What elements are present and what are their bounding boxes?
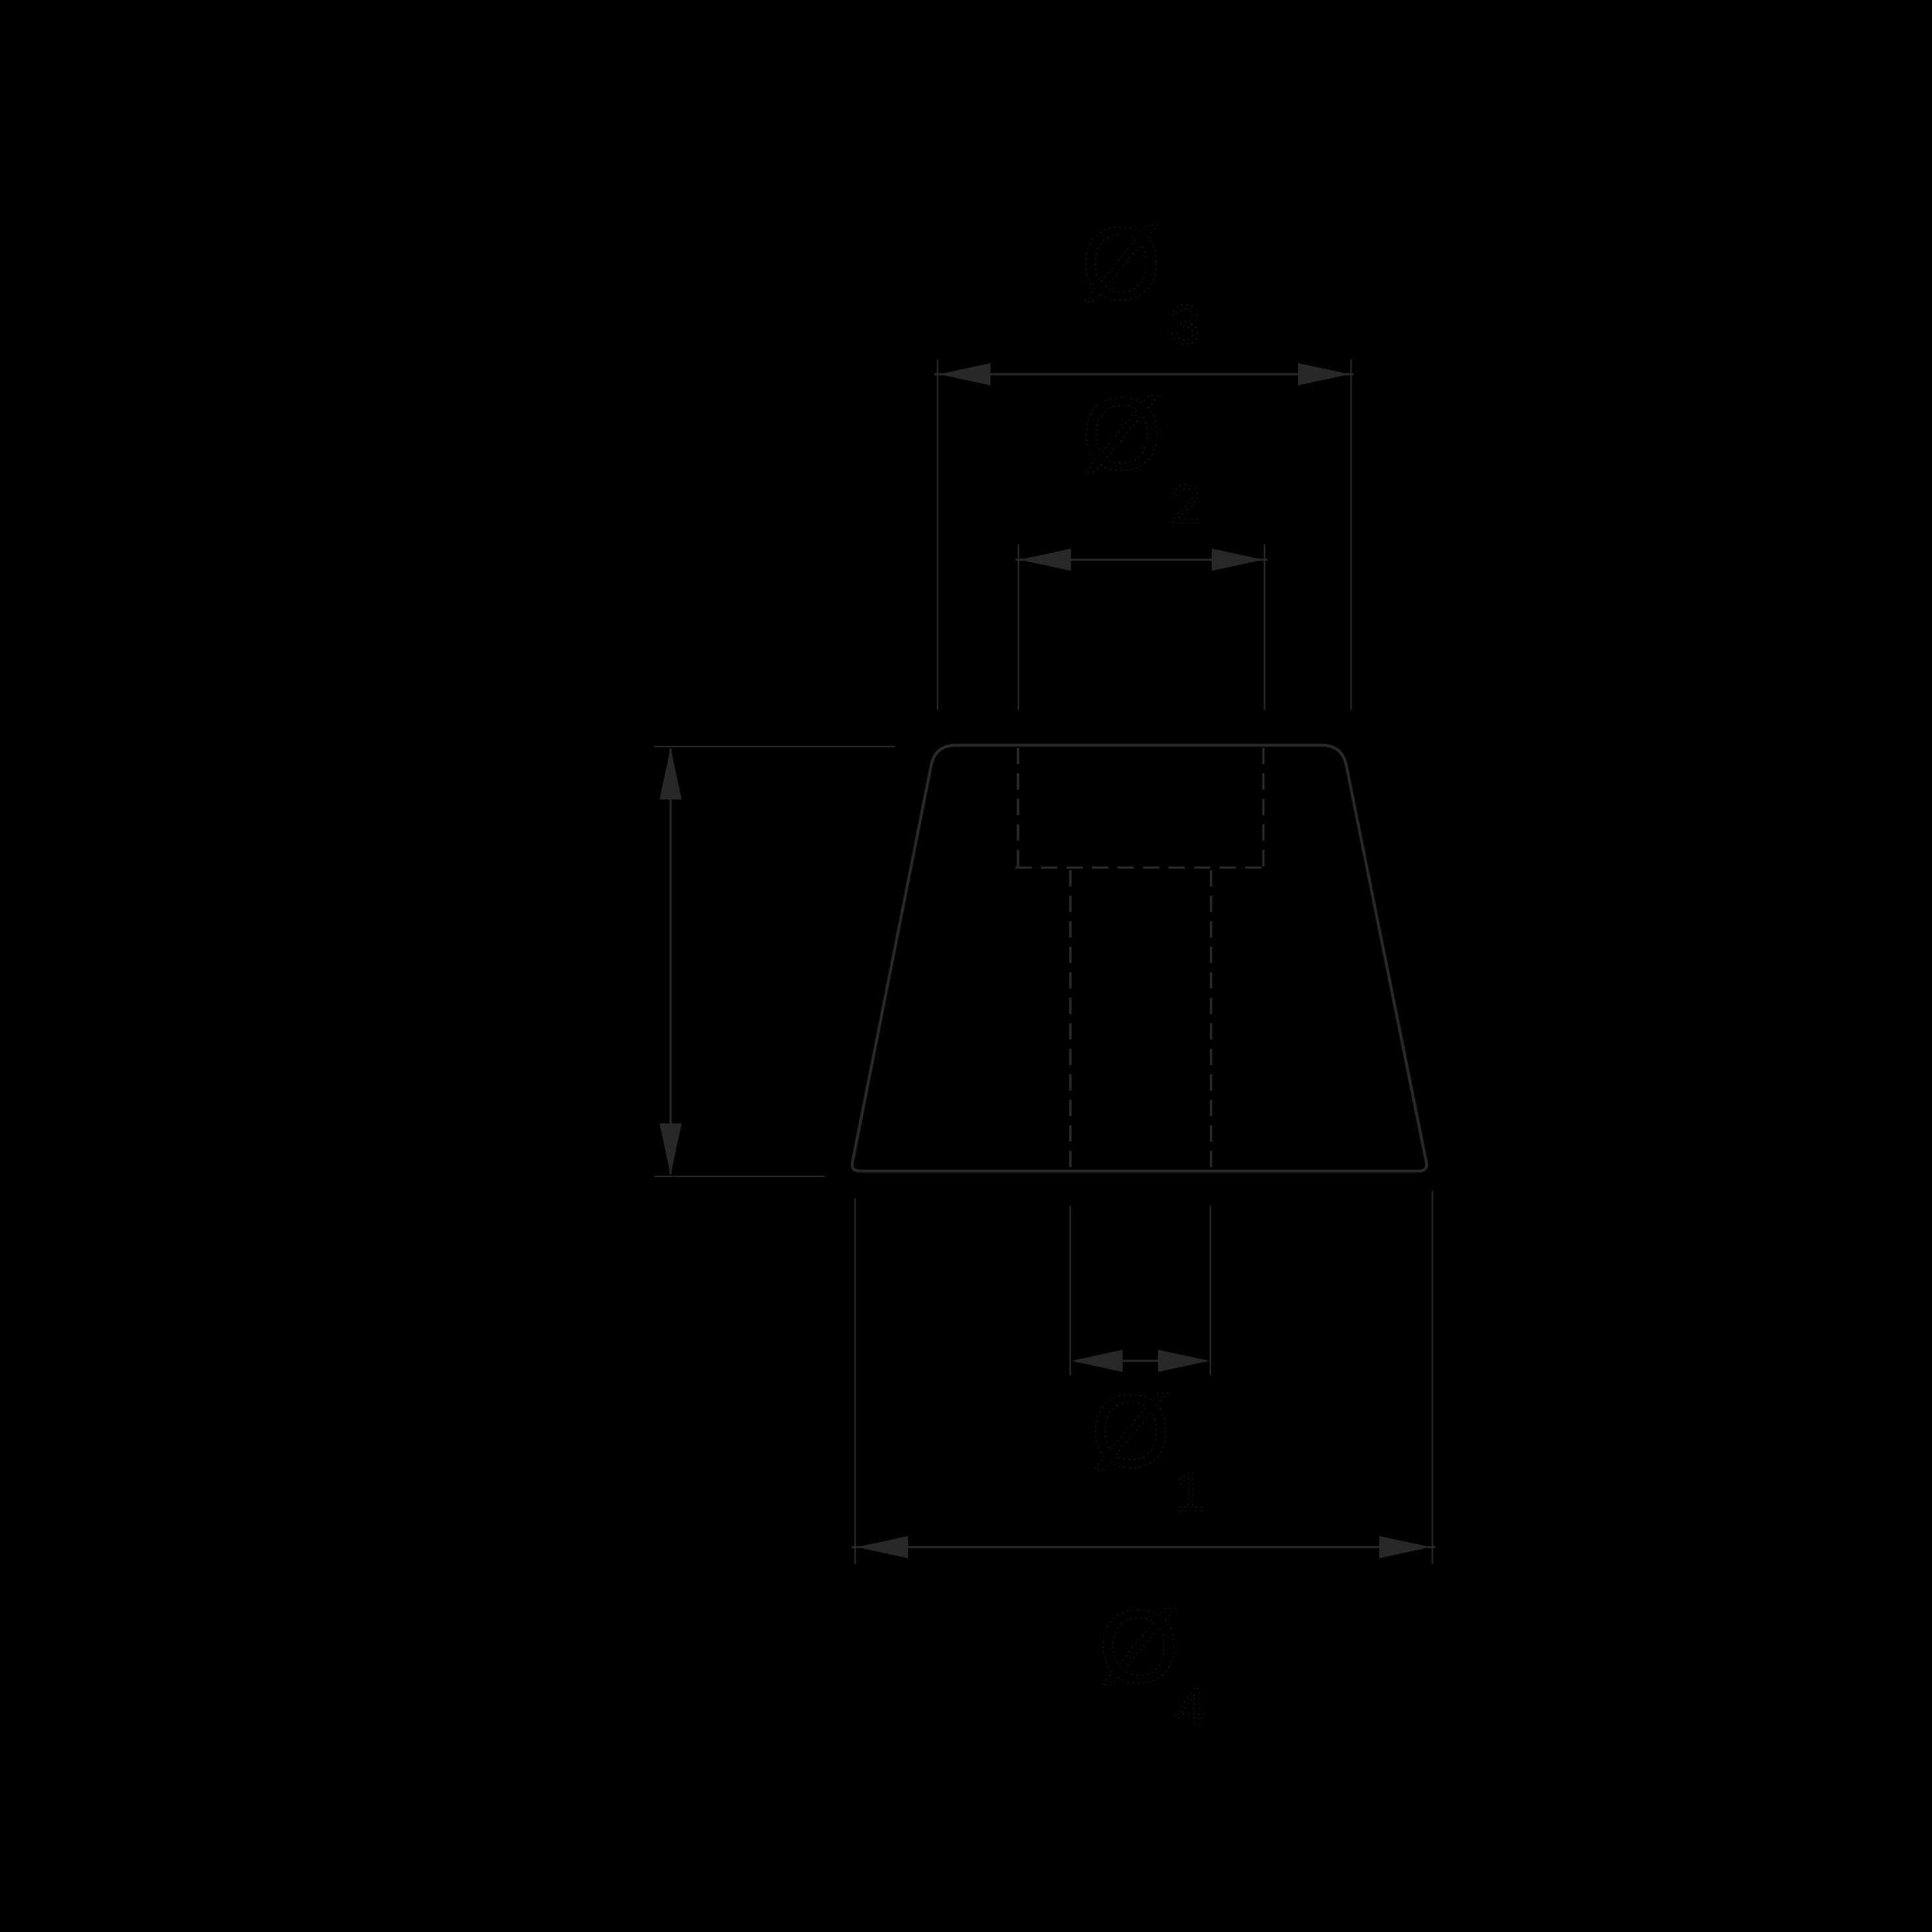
svg-text:4: 4 xyxy=(1175,1677,1206,1738)
svg-text:1: 1 xyxy=(1174,1462,1205,1523)
svg-text:3: 3 xyxy=(1170,294,1201,355)
svg-text:2: 2 xyxy=(1170,474,1201,535)
svg-text:Ø: Ø xyxy=(1081,206,1161,321)
svg-text:Ø: Ø xyxy=(1098,1589,1179,1704)
svg-text:Ø: Ø xyxy=(1091,1374,1171,1489)
svg-text:Ø: Ø xyxy=(1081,377,1162,492)
